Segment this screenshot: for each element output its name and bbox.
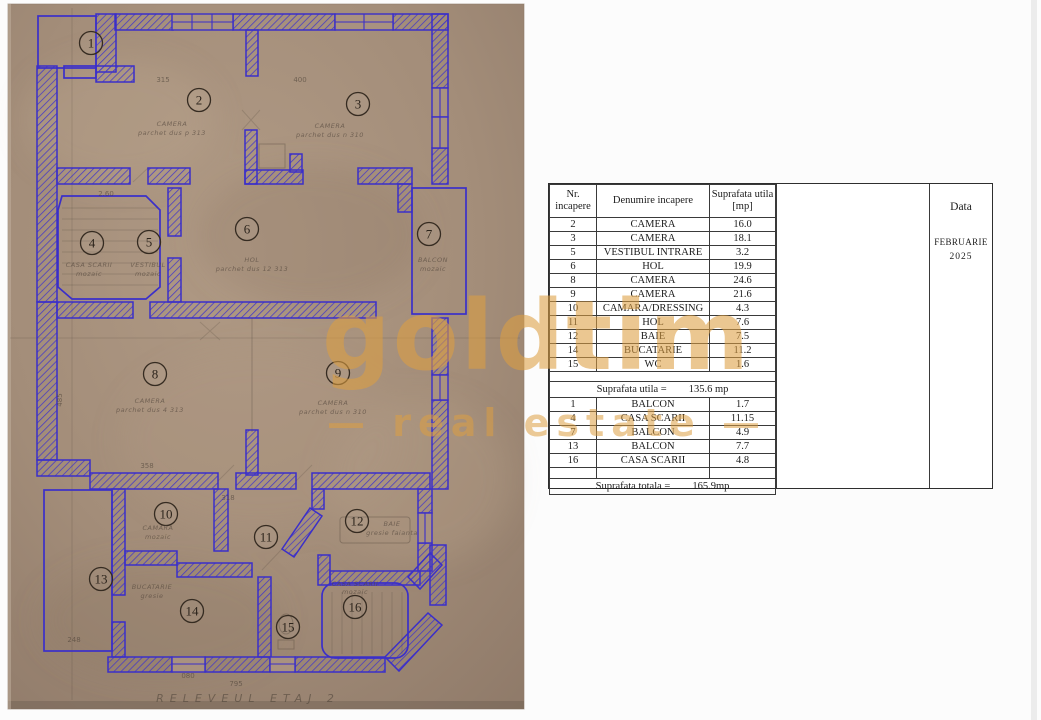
table-cell: CAMERA (597, 218, 710, 232)
table-cell: 21.6 (710, 288, 776, 302)
table-cell: 4.9 (710, 426, 776, 440)
table-row: 6HOL19.9 (550, 260, 776, 274)
table-cell: CAMARA/DRESSING (597, 302, 710, 316)
table-row: 7BALCON4.9 (550, 426, 776, 440)
table-cell: 13 (550, 440, 597, 454)
svg-text:4: 4 (89, 236, 96, 251)
svg-text:BAIE: BAIE (384, 520, 401, 528)
subtotal-value: 135.6 mp (689, 384, 729, 396)
header-area: Suprafata utila [mp] (710, 185, 776, 218)
svg-text:10: 10 (160, 507, 173, 522)
table-cell: 3 (550, 232, 597, 246)
table-cell: CASA SCARII (597, 412, 710, 426)
room-marker: 10 (155, 503, 178, 526)
table-cell: CASA SCARII (597, 454, 710, 468)
table-row: 14BUCATARIE11.2 (550, 344, 776, 358)
table-cell: CAMERA (597, 232, 710, 246)
svg-text:080: 080 (181, 672, 194, 680)
table-row: 4CASA SCARII11.15 (550, 412, 776, 426)
table-cell: 7.5 (710, 330, 776, 344)
header-nr: Nr. incapere (550, 185, 597, 218)
subtotal-row: Suprafata utila = 135.6 mp (550, 382, 776, 398)
table-row: 9CAMERA21.6 (550, 288, 776, 302)
svg-text:mozaic: mozaic (420, 265, 446, 273)
table-row: 1BALCON1.7 (550, 398, 776, 412)
svg-text:CAMERA: CAMERA (157, 120, 188, 128)
table-cell: 1.7 (710, 398, 776, 412)
table-cell: 18.1 (710, 232, 776, 246)
spacer-row (550, 468, 776, 479)
room-marker: 15 (277, 616, 300, 639)
svg-text:parchet dus n 310: parchet dus n 310 (298, 408, 367, 416)
total-row: Suprafata totala = 165.9mp (550, 479, 776, 495)
table-cell: 7.7 (710, 440, 776, 454)
svg-text:1: 1 (88, 36, 95, 51)
date-panel: Data FEBRUARIE 2025 (929, 184, 992, 488)
table-cell: 19.9 (710, 260, 776, 274)
table-cell: 6 (550, 260, 597, 274)
page: 1 2 3 4 5 6 7 8 9 10 11 12 13 14 15 16 C… (0, 0, 1041, 720)
svg-text:11: 11 (260, 530, 273, 545)
svg-text:7: 7 (426, 227, 433, 242)
date-month: FEBRUARIE (930, 237, 992, 247)
room-marker: 14 (181, 600, 204, 623)
room-marker: 3 (347, 93, 370, 116)
room-areas-table: Nr. incapere Denumire incapere Suprafata… (549, 184, 776, 495)
svg-text:2: 2 (196, 93, 203, 108)
table-row: 8CAMERA24.6 (550, 274, 776, 288)
room-marker: 9 (327, 362, 350, 385)
room-marker: 4 (81, 232, 104, 255)
table-cell: 10 (550, 302, 597, 316)
svg-text:gresie: gresie (141, 592, 164, 600)
table-cell: 3.2 (710, 246, 776, 260)
date-year: 2025 (930, 252, 992, 262)
header-name: Denumire incapere (597, 185, 710, 218)
svg-text:13: 13 (95, 572, 108, 587)
room-marker: 16 (344, 596, 367, 619)
room-marker: 6 (236, 218, 259, 241)
svg-text:BUCATARIE: BUCATARIE (132, 583, 173, 591)
table-row: 3CAMERA18.1 (550, 232, 776, 246)
svg-text:BALCON: BALCON (418, 256, 448, 264)
table-cell: 2 (550, 218, 597, 232)
svg-text:2.60: 2.60 (98, 190, 114, 198)
plan-caption: RELEVEUL ETAJ 2 (156, 692, 340, 705)
table-cell: 15 (550, 358, 597, 372)
table-cell: BALCON (597, 440, 710, 454)
svg-text:485: 485 (56, 393, 64, 406)
svg-text:gresie faianta: gresie faianta (366, 529, 418, 537)
table-cell: CAMERA (597, 288, 710, 302)
spacer-row (550, 372, 776, 382)
table-cell: BUCATARIE (597, 344, 710, 358)
room-marker: 13 (90, 568, 113, 591)
total-label: Suprafata totala = (596, 481, 671, 493)
svg-text:248: 248 (67, 636, 80, 644)
room-marker: 7 (418, 223, 441, 246)
room-marker: 1 (80, 32, 103, 55)
table-row: 11HOL7.6 (550, 316, 776, 330)
room-marker: 11 (255, 526, 278, 549)
svg-text:CAMARA: CAMARA (142, 524, 173, 532)
svg-text:CAMERA: CAMERA (318, 399, 349, 407)
svg-text:15: 15 (282, 620, 295, 635)
table-row: 12BAIE7.5 (550, 330, 776, 344)
table-cell: HOL (597, 316, 710, 330)
svg-text:parchet dus n 310: parchet dus n 310 (295, 131, 364, 139)
svg-text:795: 795 (229, 680, 242, 688)
table-cell: BAIE (597, 330, 710, 344)
total-value: 165.9mp (692, 481, 729, 493)
table-cell: BALCON (597, 426, 710, 440)
svg-text:parchet dus 4 313: parchet dus 4 313 (115, 406, 184, 414)
svg-text:9: 9 (335, 366, 342, 381)
main-rows-body: 2CAMERA16.03CAMERA18.15VESTIBUL INTRARE3… (550, 218, 776, 372)
room-marker: 5 (138, 231, 161, 254)
scan-edge (1031, 0, 1037, 720)
svg-text:358: 358 (140, 462, 153, 470)
svg-text:parchet dus p 313: parchet dus p 313 (137, 129, 206, 137)
table-cell: 16.0 (710, 218, 776, 232)
table-cell: 24.6 (710, 274, 776, 288)
subtotal-label: Suprafata utila = (597, 384, 667, 396)
svg-text:VESTIBUL: VESTIBUL (130, 261, 165, 269)
svg-text:5: 5 (146, 235, 153, 250)
table-row: 2CAMERA16.0 (550, 218, 776, 232)
table-cell: 4.3 (710, 302, 776, 316)
table-row: 5VESTIBUL INTRARE3.2 (550, 246, 776, 260)
table-cell: 9 (550, 288, 597, 302)
svg-text:14: 14 (186, 604, 200, 619)
table-cell: 14 (550, 344, 597, 358)
annex-rows-body: 1BALCON1.74CASA SCARII11.157BALCON4.913B… (550, 398, 776, 468)
table-row: 15WC1.6 (550, 358, 776, 372)
svg-text:315: 315 (156, 76, 169, 84)
table-cell: BALCON (597, 398, 710, 412)
svg-text:16: 16 (349, 600, 363, 615)
svg-text:318: 318 (221, 494, 234, 502)
svg-text:mozaic: mozaic (76, 270, 102, 278)
table-cell: VESTIBUL INTRARE (597, 246, 710, 260)
table-cell: 11 (550, 316, 597, 330)
table-cell: 7.6 (710, 316, 776, 330)
svg-text:CAMERA: CAMERA (135, 397, 166, 405)
table-cell: 1.6 (710, 358, 776, 372)
table-row: 13BALCON7.7 (550, 440, 776, 454)
svg-text:CASA SCARII: CASA SCARII (66, 261, 113, 269)
svg-text:mozaic: mozaic (145, 533, 171, 541)
table-cell: CAMERA (597, 274, 710, 288)
room-marker: 8 (144, 363, 167, 386)
svg-text:3: 3 (355, 97, 362, 112)
date-panel-title: Data (930, 201, 992, 213)
svg-text:mozaic: mozaic (135, 270, 161, 278)
svg-text:400: 400 (293, 76, 306, 84)
svg-text:CAMERA: CAMERA (315, 122, 346, 130)
table-cell: 7 (550, 426, 597, 440)
svg-text:8: 8 (152, 367, 159, 382)
svg-text:mozaic: mozaic (342, 588, 368, 596)
svg-text:12: 12 (351, 514, 364, 529)
areas-table-panel: Nr. incapere Denumire incapere Suprafata… (548, 183, 993, 489)
table-cell: 4 (550, 412, 597, 426)
table-cell: 11.15 (710, 412, 776, 426)
table-cell: 4.8 (710, 454, 776, 468)
empty-notes-column (776, 184, 929, 488)
table-cell: 11.2 (710, 344, 776, 358)
table-cell: 12 (550, 330, 597, 344)
table-header-row: Nr. incapere Denumire incapere Suprafata… (550, 185, 776, 218)
table-cell: HOL (597, 260, 710, 274)
table-cell: 8 (550, 274, 597, 288)
table-cell: 1 (550, 398, 597, 412)
table-cell: 5 (550, 246, 597, 260)
table-cell: WC (597, 358, 710, 372)
table-cell: 16 (550, 454, 597, 468)
svg-text:parchet dus 12 313: parchet dus 12 313 (215, 265, 289, 273)
svg-text:6: 6 (244, 222, 251, 237)
svg-text:CASA SCARII: CASA SCARII (332, 580, 379, 588)
room-marker: 2 (188, 89, 211, 112)
room-marker: 12 (346, 510, 369, 533)
table-row: 10CAMARA/DRESSING4.3 (550, 302, 776, 316)
table-row: 16CASA SCARII4.8 (550, 454, 776, 468)
svg-text:HOL: HOL (244, 256, 259, 264)
